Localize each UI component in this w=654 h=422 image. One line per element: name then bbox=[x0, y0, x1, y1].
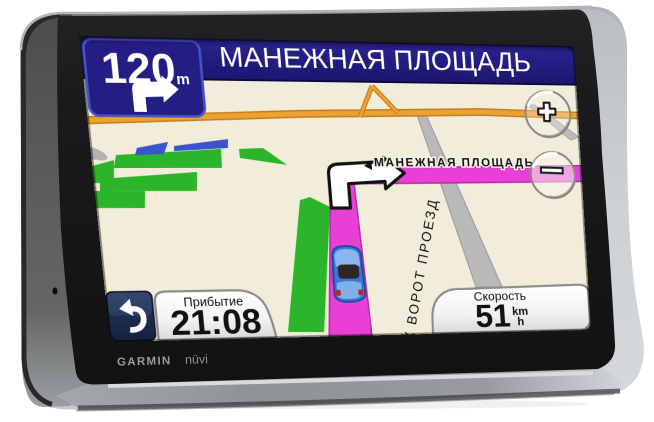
svg-text:21:08: 21:08 bbox=[169, 302, 263, 342]
svg-text:GARMIN: GARMIN bbox=[117, 355, 172, 368]
svg-text:m: m bbox=[176, 72, 191, 88]
svg-text:h: h bbox=[517, 315, 525, 328]
svg-text:51: 51 bbox=[474, 297, 512, 334]
svg-text:nüvi: nüvi bbox=[185, 352, 208, 367]
svg-text:МАНЕЖНАЯ ПЛОЩАДЬ: МАНЕЖНАЯ ПЛОЩАДЬ bbox=[373, 155, 534, 169]
